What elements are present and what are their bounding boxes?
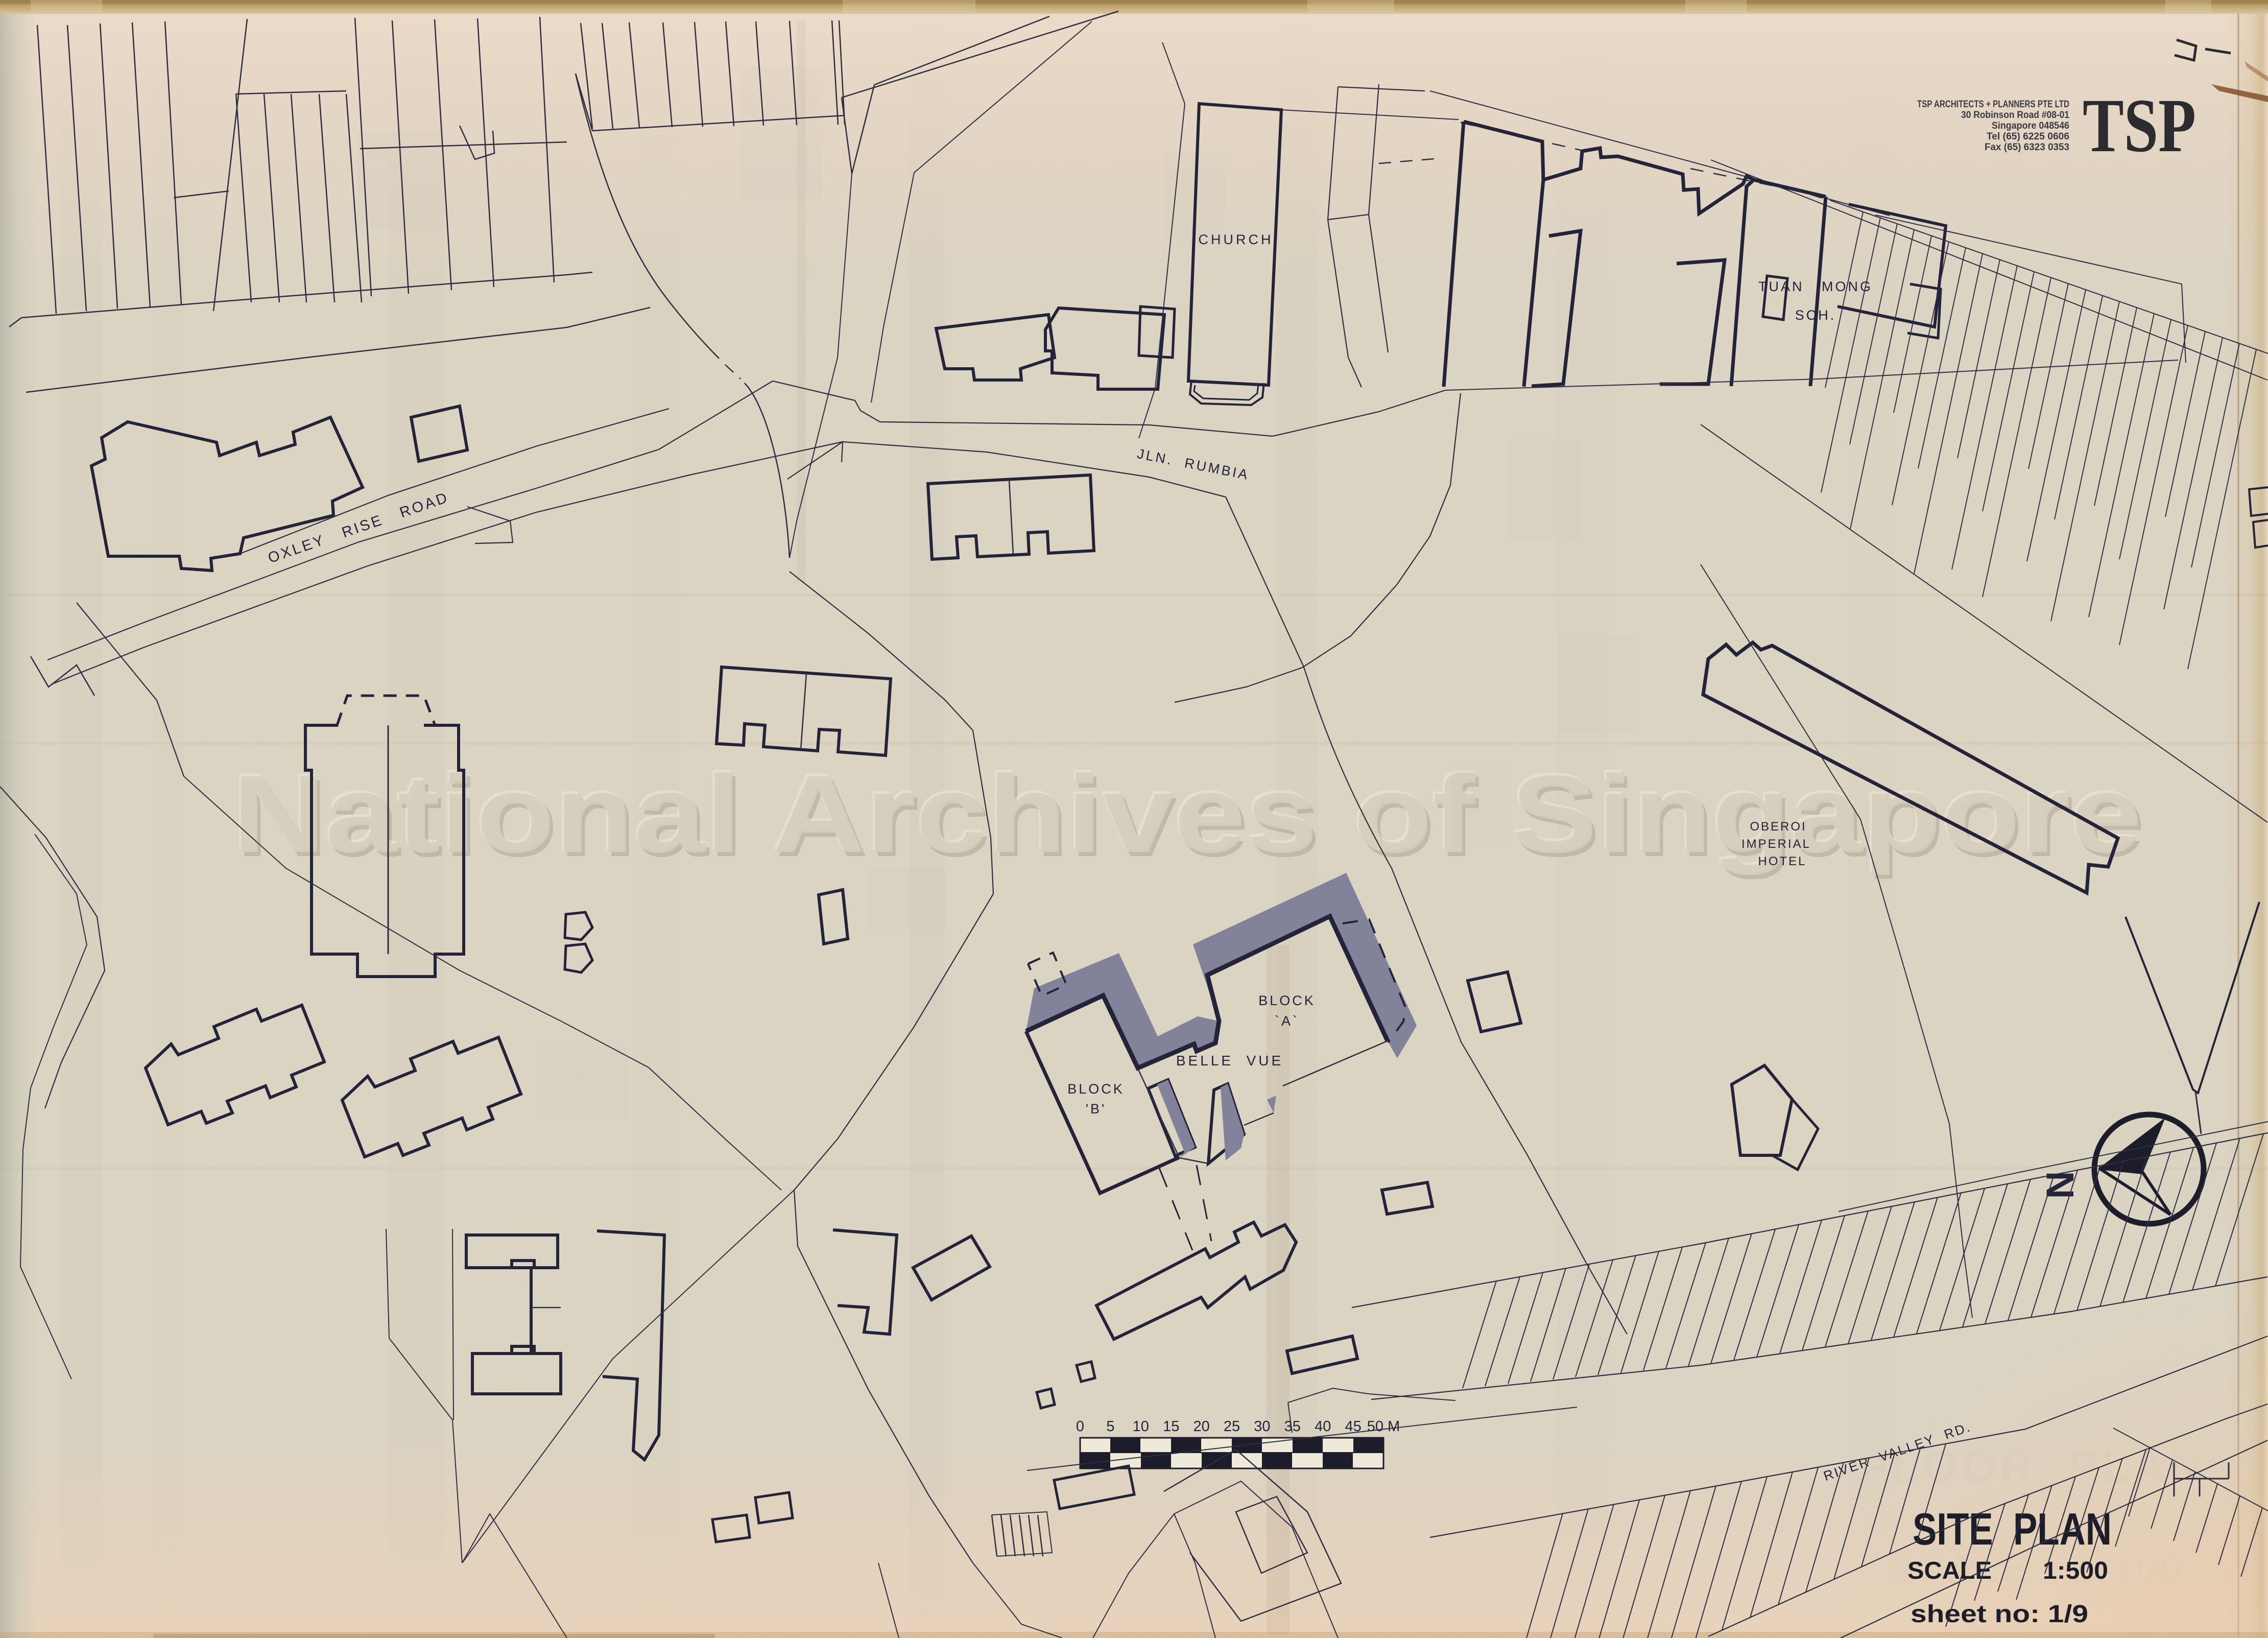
svg-text:TUAN MONG: TUAN MONG — [1758, 279, 1873, 294]
svg-text:SCALE: SCALE — [1907, 1557, 1992, 1584]
svg-text:BELLE VUE: BELLE VUE — [1176, 1053, 1283, 1069]
svg-text:30: 30 — [1254, 1418, 1270, 1435]
svg-text:50 M: 50 M — [1367, 1418, 1400, 1435]
svg-text:TSP: TSP — [2083, 83, 2196, 168]
svg-text:40: 40 — [1315, 1418, 1331, 1435]
svg-text:Fax (65) 6323 0353: Fax (65) 6323 0353 — [1985, 142, 2069, 153]
svg-text:20: 20 — [1193, 1418, 1209, 1435]
svg-text:TSP ARCHITECTS + PLANNERS PTE: TSP ARCHITECTS + PLANNERS PTE LTD — [1917, 99, 2069, 110]
svg-text:'B': 'B' — [1086, 1101, 1106, 1117]
svg-text:15: 15 — [1163, 1418, 1179, 1435]
svg-text:National Archives of Singapore: National Archives of Singapore — [232, 752, 2142, 875]
svg-text:30 Robinson Road #08-01: 30 Robinson Road #08-01 — [1961, 110, 2069, 121]
svg-text:0: 0 — [1076, 1418, 1084, 1435]
svg-text:sheet no: 1/9: sheet no: 1/9 — [1911, 1601, 2088, 1628]
svg-text:Tel (65) 6225 0606: Tel (65) 6225 0606 — [1987, 131, 2069, 142]
svg-text:IMPERIAL: IMPERIAL — [1741, 837, 1811, 851]
svg-text:1:500: 1:500 — [2043, 1557, 2108, 1584]
svg-text:HOTEL: HOTEL — [1758, 854, 1806, 868]
svg-text:10: 10 — [1133, 1418, 1149, 1435]
svg-text:`A`: `A` — [1275, 1013, 1299, 1029]
svg-text:5: 5 — [1106, 1418, 1114, 1435]
svg-text:BLOCK: BLOCK — [1067, 1081, 1125, 1097]
svg-text:OBEROI: OBEROI — [1750, 820, 1806, 834]
svg-text:Singapore 048546: Singapore 048546 — [1992, 121, 2069, 131]
svg-text:BLOCK: BLOCK — [1258, 993, 1316, 1008]
svg-text:25: 25 — [1224, 1418, 1240, 1435]
